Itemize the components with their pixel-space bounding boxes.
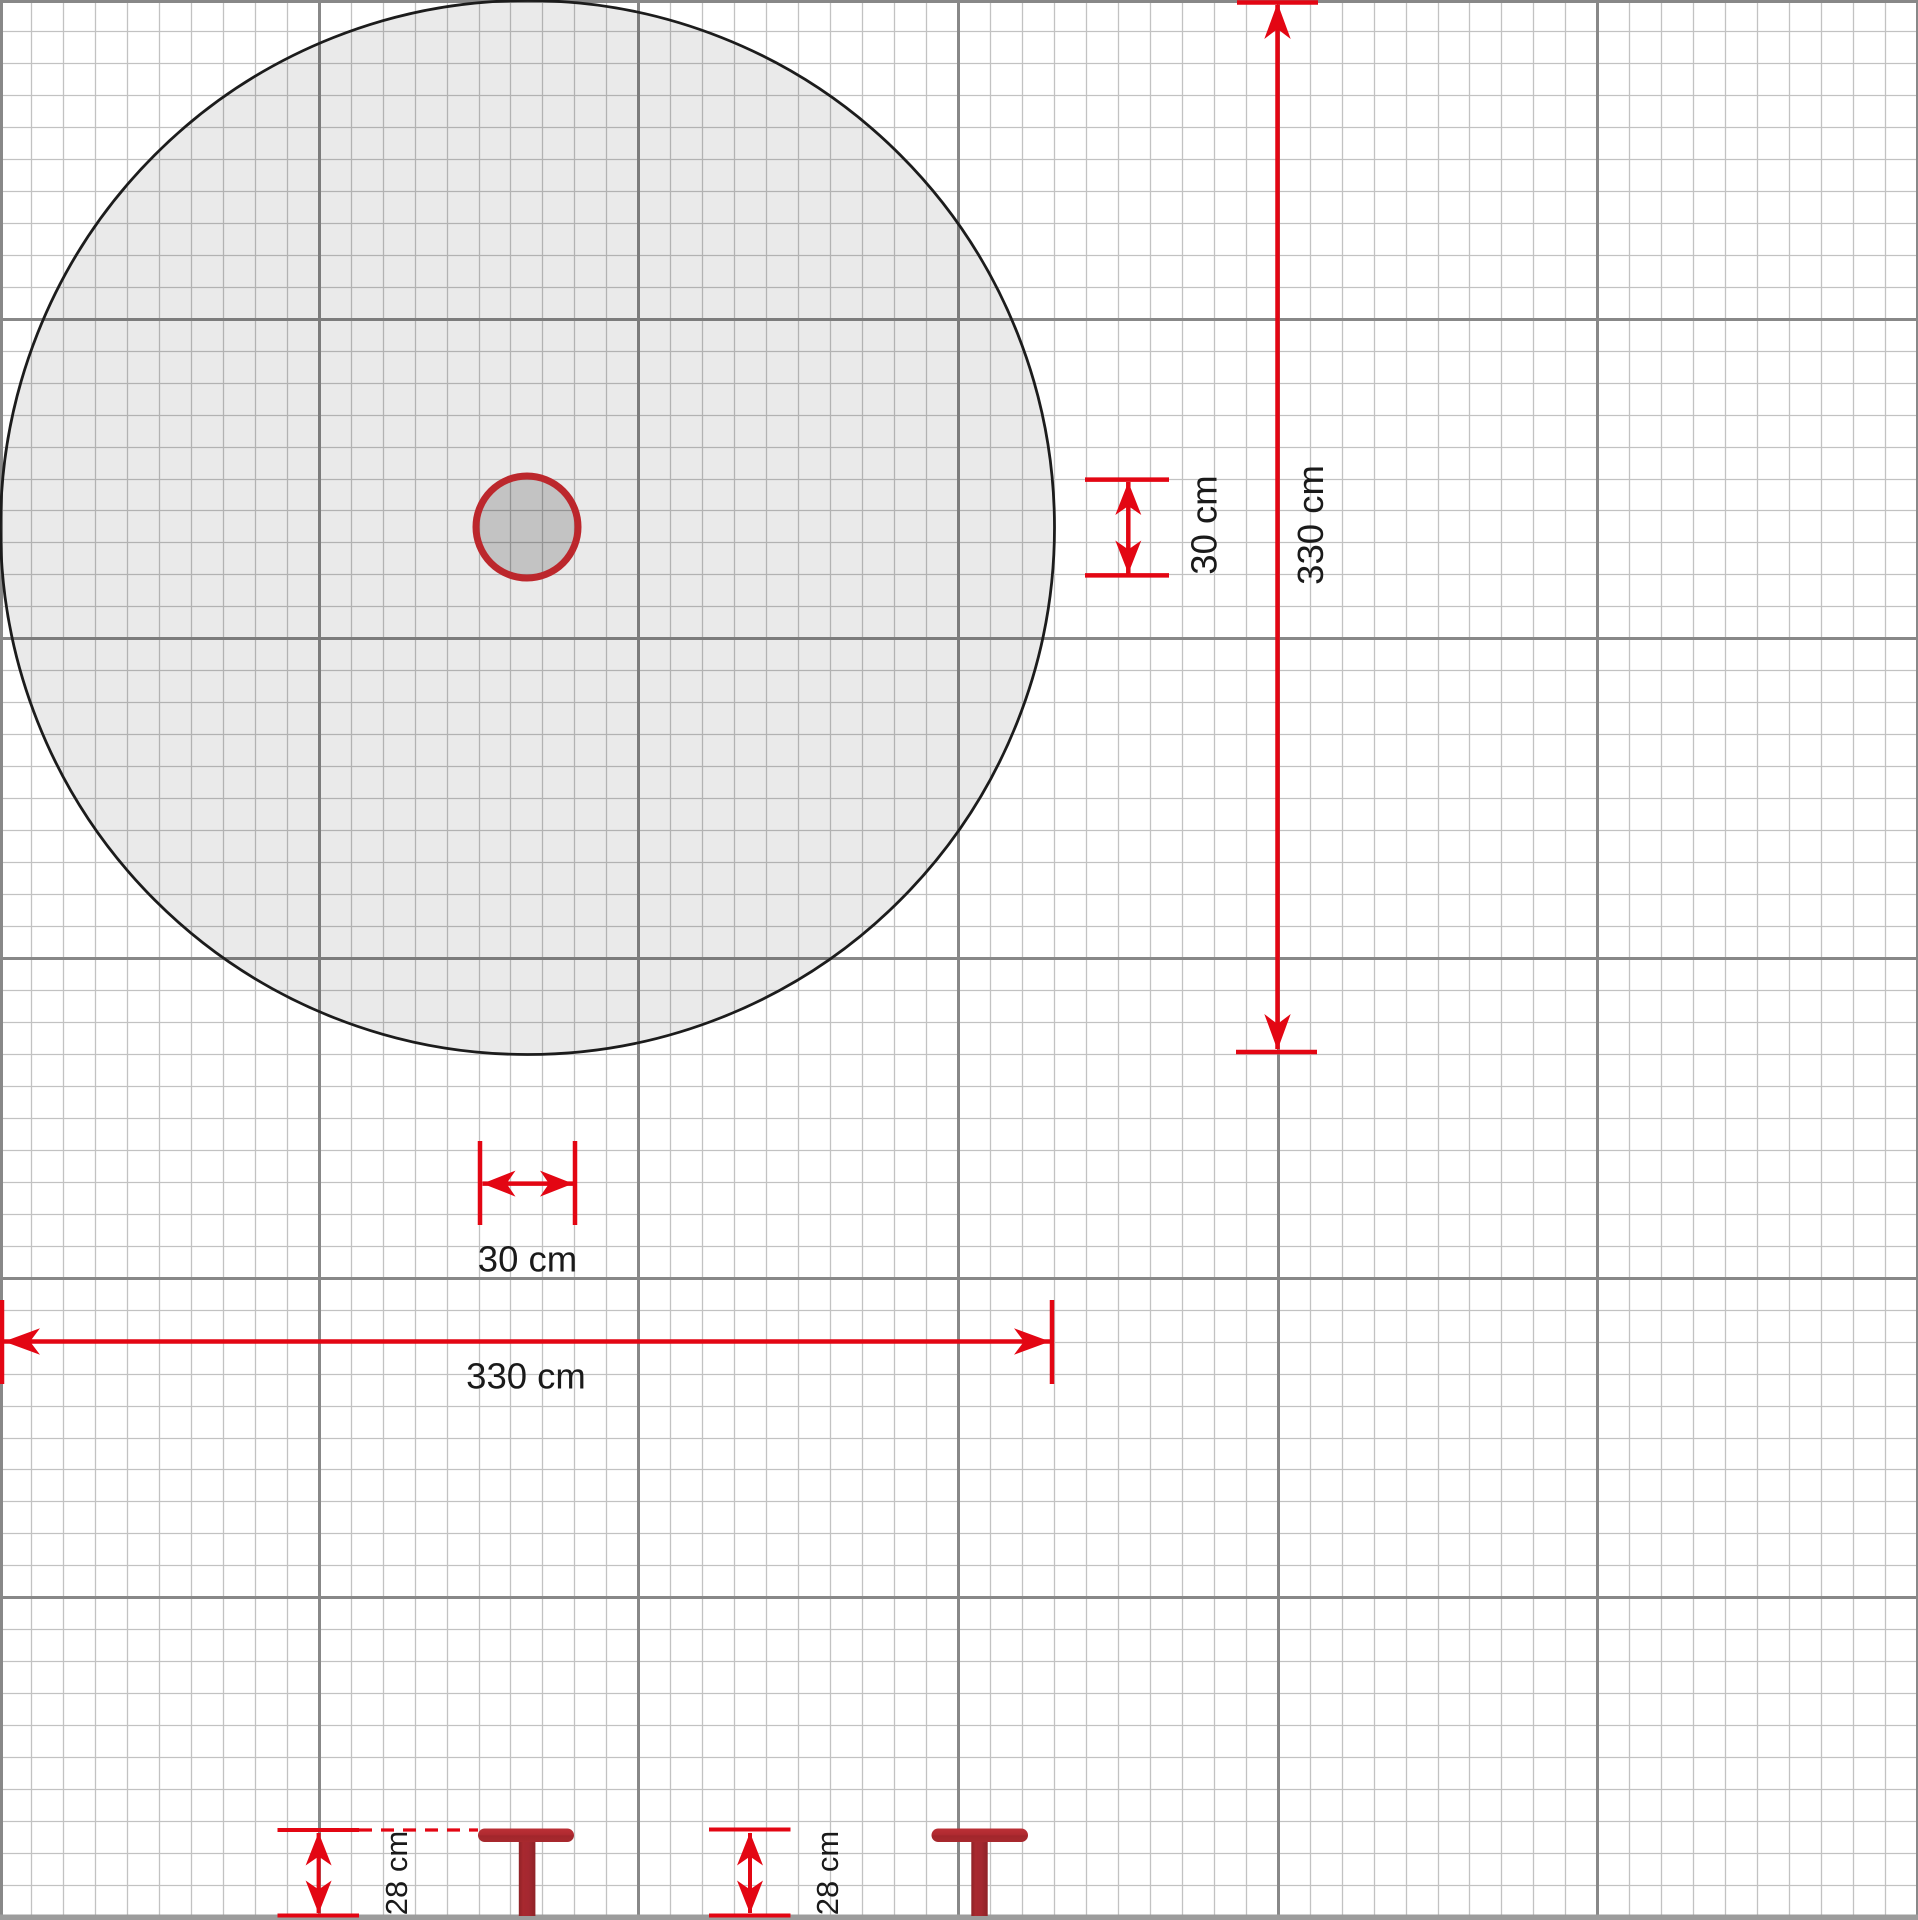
- svg-text:330 cm: 330 cm: [1290, 465, 1331, 585]
- svg-text:330 cm: 330 cm: [466, 1356, 586, 1397]
- svg-text:28 cm: 28 cm: [810, 1831, 845, 1915]
- svg-text:30 cm: 30 cm: [478, 1239, 577, 1280]
- svg-text:28 cm: 28 cm: [379, 1831, 414, 1915]
- svg-text:30 cm: 30 cm: [1184, 475, 1225, 574]
